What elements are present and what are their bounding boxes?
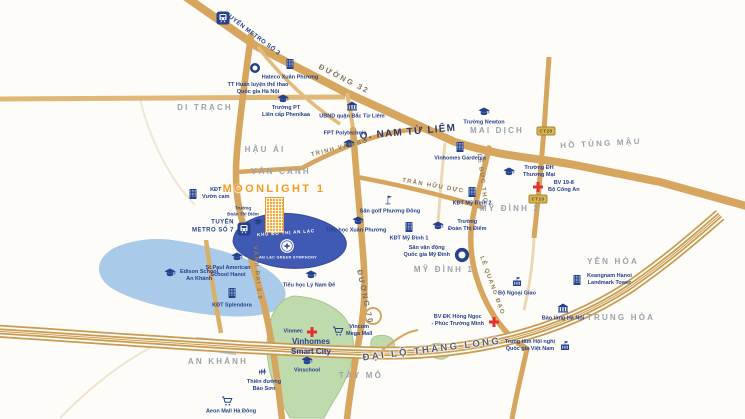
moonlight-tower — [265, 197, 284, 233]
label-moonlight-title: MOONLIGHT 1 — [223, 183, 326, 197]
vinhomes-gardenia-icon — [454, 141, 466, 153]
phenikaa-label: Trường PT Liên cấp Phenikaa — [262, 105, 310, 119]
dtd-vancanh-cap-icon — [254, 218, 263, 227]
kdt-my-dinh-1-icon — [403, 221, 415, 233]
fpt-polytechnic-label: FPT Polytechnic — [324, 131, 367, 138]
th-ly-nam-de-icon — [305, 269, 317, 281]
kdt-vuon-cam-label: KĐT Vườn cam — [202, 187, 229, 201]
bv-19-8-icon — [532, 181, 544, 193]
bo-ngoai-giao-label: Bộ Ngoại Giao — [498, 291, 536, 298]
road-le-quang-dao-south — [512, 349, 527, 419]
svd-my-dinh-label: Sân vận động Quốc gia Mỹ Đình — [404, 245, 450, 259]
minor-road-4 — [524, 238, 534, 310]
label-an-lac-sub: AN LẠC GREEN SYMPHONY — [259, 256, 317, 261]
vincom-mega-mall-icon — [332, 325, 344, 337]
truong-newton-icon — [478, 106, 490, 118]
thien-duong-bao-son-label: Thiên đường Bảo Sơn — [247, 379, 281, 393]
tt-huan-luyen-icon — [249, 62, 261, 74]
vinmec-label: Vinmec — [284, 329, 303, 336]
edison-school-icon — [164, 267, 176, 279]
bao-tang-ha-noi-label: Bảo tàng Hà Nội — [542, 316, 584, 323]
kdt-my-dinh-2-label: KĐT Mỹ Đình 2 — [453, 201, 492, 208]
keangnam-icon — [571, 274, 583, 286]
th-xuan-phuong-label: Tiểu học Xuân Phương — [326, 228, 387, 235]
bv-19-8-label: BV 19-8 Bộ Công An — [548, 180, 580, 194]
label-van-canh: VÂN CANH — [251, 167, 311, 177]
bao-tang-ha-noi-icon — [557, 302, 569, 314]
road-di-trach — [0, 97, 345, 99]
th-xuan-phuong-icon — [352, 215, 364, 227]
doan-thi-diem-label: Trường Đoàn Thị Điểm — [448, 219, 487, 233]
st-paul-icon — [231, 251, 243, 263]
aeon-mall-icon — [221, 395, 233, 407]
tt-hoi-nghi-icon — [559, 340, 571, 352]
vincom-mega-mall-label: Vincom Mega Mall — [346, 324, 372, 338]
label-truong-dtd-vancanh: Trường Đoàn Thị Điểm — [227, 205, 259, 216]
kdt-splendora-icon — [226, 287, 238, 299]
vinhomes-gardenia-label: Vinhomes Gardenia — [434, 156, 486, 163]
san-golf-label: Sân golf Phương Đông — [360, 209, 420, 216]
bv-hong-ngoc-icon — [488, 316, 500, 328]
kdt-vuon-cam-icon — [187, 188, 199, 200]
aeon-mall-label: Aeon Mall Hà Đông — [206, 409, 256, 416]
label-di-trach: DI TRẠCH — [177, 103, 233, 113]
vinschool-label: Vinschool — [294, 368, 320, 375]
label-hau-ai: HẬU ÁI — [245, 145, 286, 155]
badge-ct20-top: CT20 — [536, 127, 555, 136]
bv-hong-ngoc-label: BV ĐK Hồng Ngọc - Phúc Trường Minh — [432, 314, 485, 328]
dh-thuong-mai-icon — [503, 166, 515, 178]
ubnd-bac-tu-liem-icon — [346, 100, 358, 112]
label-yen-hoa: YÊN HÒA — [587, 257, 639, 267]
label-trung-hoa: TRUNG HÒA — [587, 313, 655, 323]
truong-newton-label: Trường Newton — [463, 120, 504, 127]
label-tay-mo: TÂY MỖ — [339, 371, 383, 381]
badge-ct20-bottom: CT20 — [528, 195, 547, 204]
label-vinhomes-smart-city: Vinhomes Smart City — [291, 337, 331, 357]
thien-duong-bao-son-icon — [257, 365, 269, 377]
map-canvas: DI TRẠCHHẬU ÁIVÂN CANHMAI DỊCHHỒ TÙNG MẬ… — [0, 0, 745, 419]
metro-7-station-icon — [238, 223, 251, 236]
label-metro-7: TUYẾN METRO SỐ 7 — [192, 220, 234, 235]
doan-thi-diem-icon — [432, 220, 444, 232]
svd-my-dinh-icon — [454, 247, 471, 264]
kdt-splendora-label: KĐT Splendora — [212, 303, 252, 310]
label-my-dinh-1: MỸ ĐÌNH 1 — [414, 265, 474, 275]
minor-road-1 — [60, 338, 172, 418]
edison-school-label: Edison School An Khánh — [180, 269, 218, 283]
hateco-xuan-phuong-icon — [284, 58, 296, 70]
kdt-my-dinh-2-icon — [466, 186, 478, 198]
bo-ngoai-giao-icon — [511, 276, 523, 288]
tt-hoi-nghi-label: Trung tâm Hội nghị Quốc gia Việt Nam — [505, 339, 555, 353]
label-mai-dich: MAI DỊCH — [470, 126, 524, 136]
hateco-xuan-phuong-label: Hateco Xuân Phương — [262, 75, 318, 82]
th-ly-nam-de-label: Tiểu học Lý Nam Đế — [283, 283, 335, 290]
kdt-my-dinh-1-label: KĐT Mỹ Đình 1 — [390, 236, 429, 243]
label-an-khanh: AN KHÁNH — [188, 357, 248, 367]
ubnd-bac-tu-liem-label: UBND quận Bắc Từ Liêm — [319, 114, 384, 121]
an-lac-logo-icon — [280, 239, 295, 254]
dh-thuong-mai-label: Trường ĐH Thương Mại — [523, 165, 555, 179]
san-golf-icon — [382, 194, 394, 206]
tt-huan-luyen-label: TT Huấn luyện thể thao Quốc gia Hà Nội — [228, 82, 289, 96]
keangnam-label: Keangnam Hanoi Landmark Tower — [587, 273, 632, 287]
